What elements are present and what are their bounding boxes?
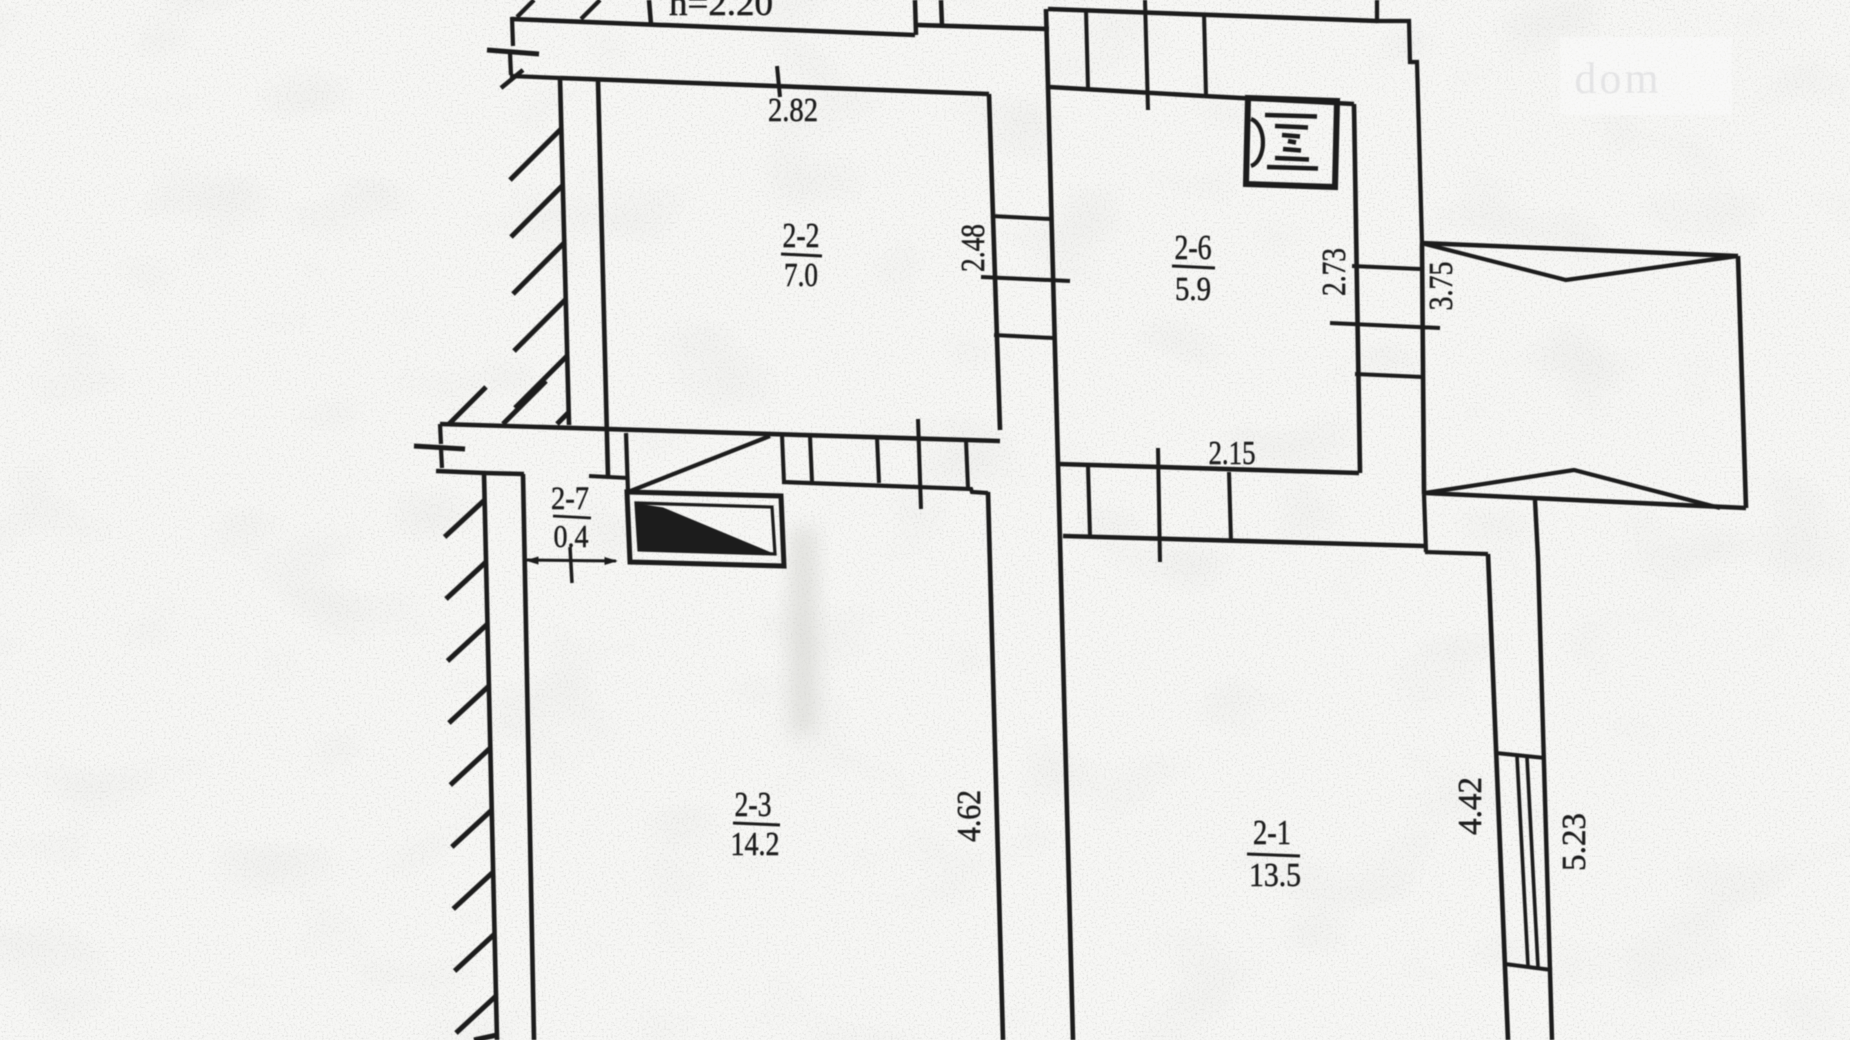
svg-text:h=2.20: h=2.20 [669, 0, 773, 23]
svg-text:4.42: 4.42 [1452, 777, 1489, 835]
svg-text:3.75: 3.75 [1423, 262, 1460, 311]
svg-text:2.82: 2.82 [768, 92, 818, 129]
svg-text:7.0: 7.0 [784, 257, 818, 294]
svg-text:2-7: 2-7 [551, 481, 589, 517]
svg-text:4.62: 4.62 [951, 790, 988, 842]
svg-text:2.48: 2.48 [955, 224, 992, 272]
svg-text:2-2: 2-2 [783, 216, 820, 255]
svg-text:2-6: 2-6 [1175, 228, 1212, 267]
svg-text:14.2: 14.2 [731, 826, 780, 863]
svg-text:2-3: 2-3 [735, 785, 772, 824]
svg-text:5.9: 5.9 [1175, 271, 1211, 308]
svg-text:2.73: 2.73 [1316, 248, 1353, 296]
svg-text:2.15: 2.15 [1209, 435, 1256, 472]
svg-text:13.5: 13.5 [1249, 857, 1301, 894]
svg-text:2-1: 2-1 [1253, 813, 1291, 852]
svg-text:dom: dom [1574, 54, 1661, 103]
svg-text:5.23: 5.23 [1556, 813, 1593, 871]
